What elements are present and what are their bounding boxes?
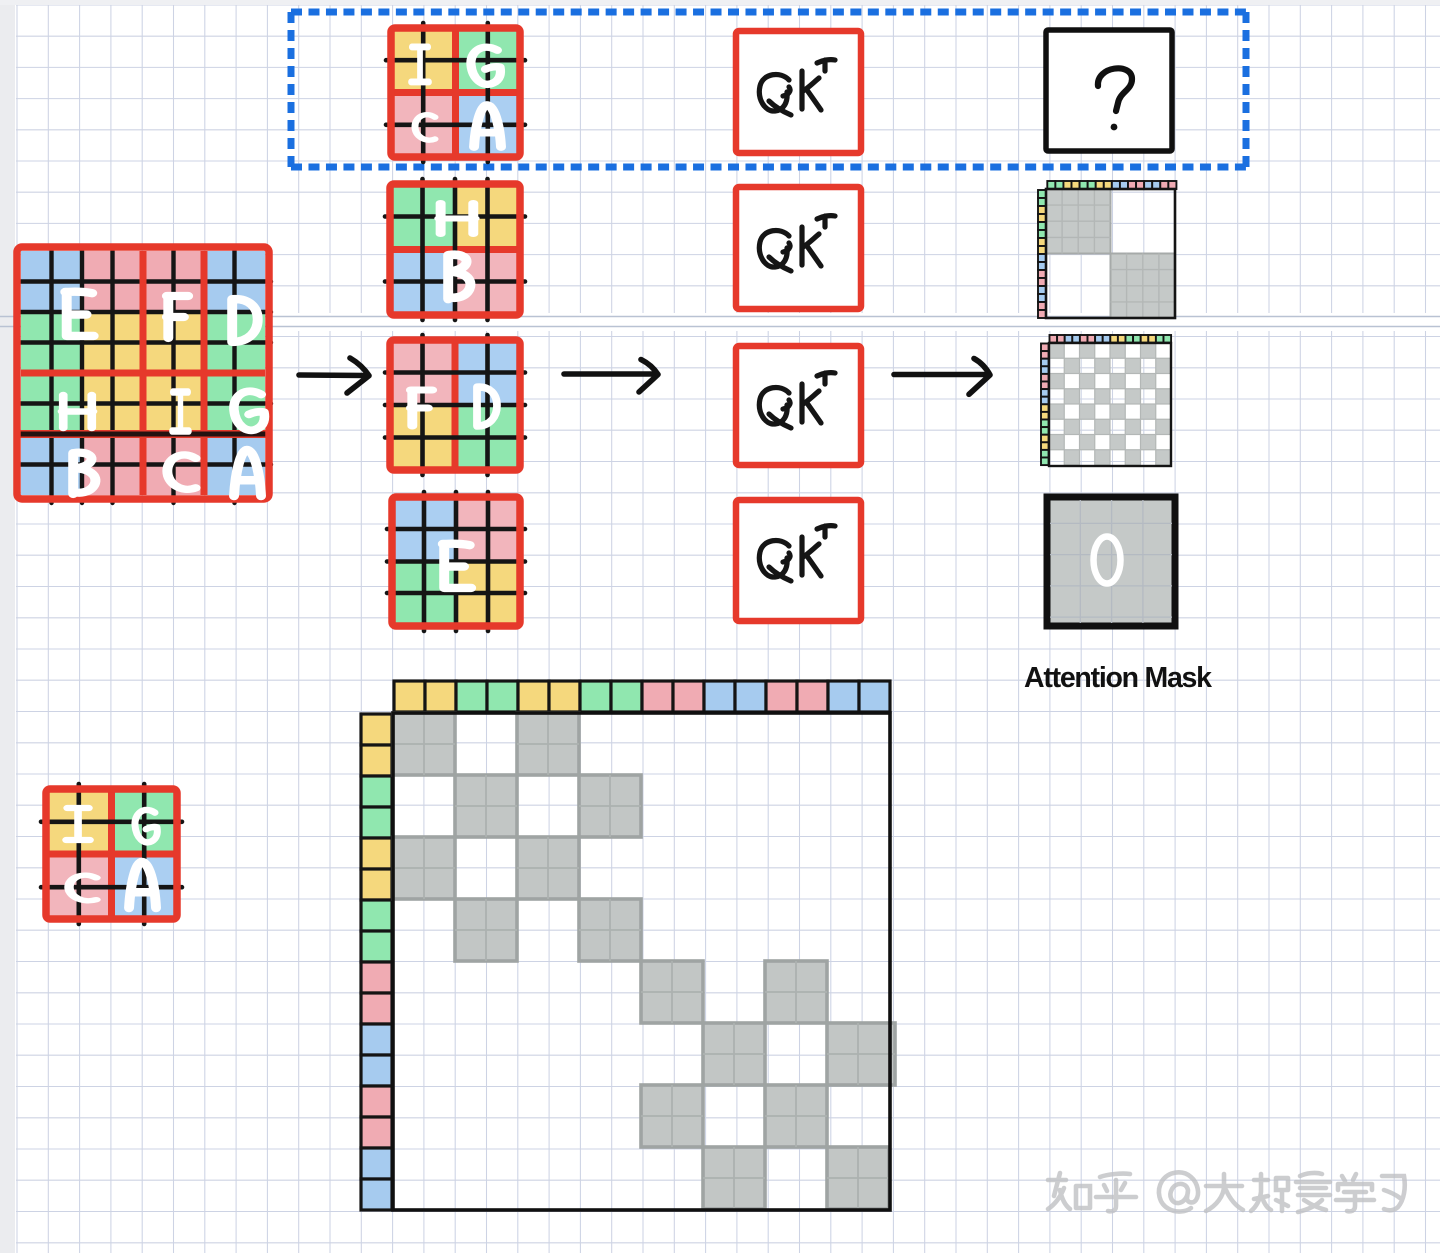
svg-text:Attention Mask: Attention Mask (1024, 662, 1212, 694)
